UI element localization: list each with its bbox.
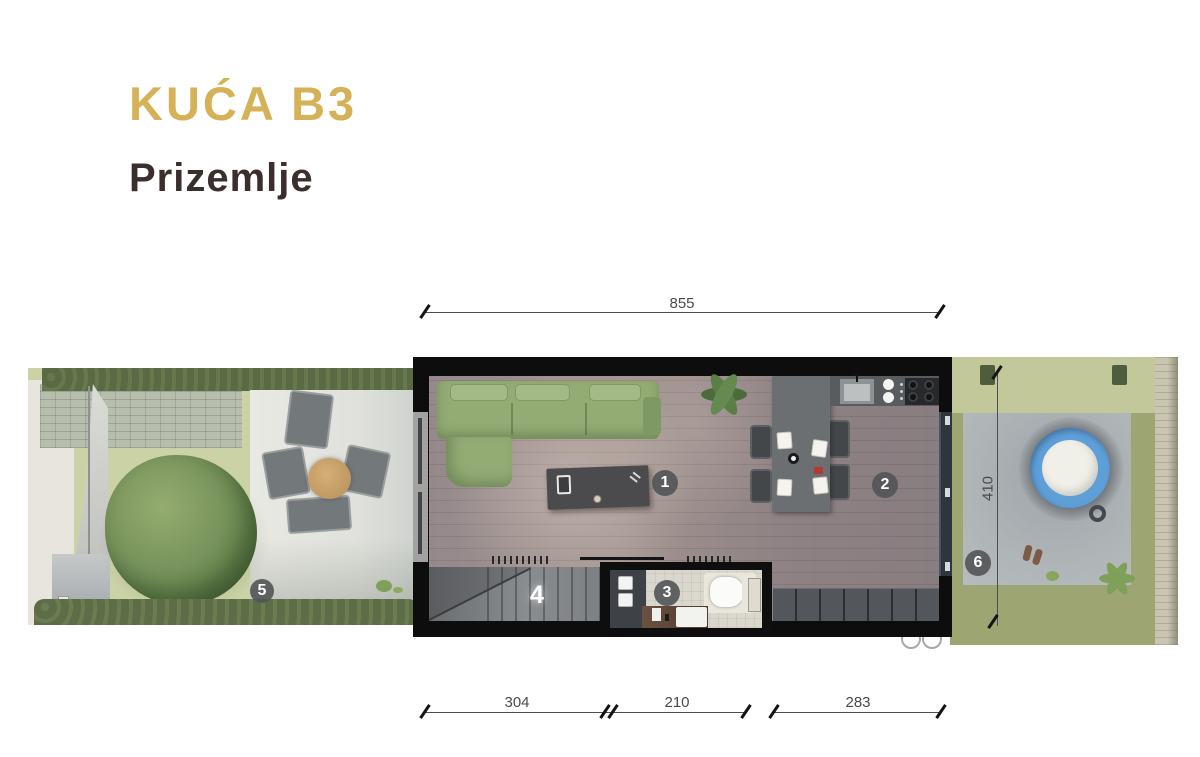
hedge-top [42,368,415,391]
house-outline: 3 1 2 4 [413,357,952,637]
dimension-line-bottom-3 [774,712,941,713]
terrace-shadow [250,538,415,608]
small-plant [1046,571,1059,581]
small-plants [376,580,392,592]
kitchen-sink [840,379,874,404]
outdoor-table [308,458,351,499]
outdoor-chair [286,495,352,534]
dining-table [772,376,830,512]
counter-plate [883,379,894,390]
sofa-chaise [446,437,512,487]
dimension-label-top: 855 [632,295,732,312]
room-marker-3: 3 [654,580,680,606]
wardrobe-closet [773,588,939,621]
front-garden: 5 [28,368,415,625]
cup [593,495,601,503]
kitchen-counter [830,376,939,406]
tablet [557,475,572,494]
vanity-item [652,608,661,621]
dining-chair [750,469,772,503]
washer [618,576,633,590]
door-handle [945,562,950,571]
sink-basin [844,384,870,401]
outdoor-chair [284,390,334,450]
floor-plan-page: KUĆA B3 Prizemlje 855 410 304 210 283 [0,0,1200,757]
sliding-glass-door [939,412,952,576]
room-marker-4: 4 [530,581,544,610]
lounge-chair [1112,365,1127,385]
sofa-seam [511,403,513,435]
sofa-seam [585,403,587,435]
place-setting [777,479,793,497]
sidewalk [1155,357,1178,645]
sofa-cushion [450,384,508,401]
counter-plate [883,392,894,403]
boundary-wall-edge [88,386,90,556]
place-setting [811,439,828,458]
coffee-table [546,465,649,510]
dashed-edge [492,556,549,564]
burner [924,380,934,390]
window-left [413,412,428,562]
burner [908,380,918,390]
cooktop [905,378,939,405]
bathroom-sink [676,607,707,627]
staircase [429,567,607,621]
room-marker-2: 2 [872,472,898,498]
sofa-armrest [643,397,661,435]
outdoor-chair [261,446,311,501]
tree [105,455,257,605]
dryer [618,593,633,607]
dining-chair [750,425,772,459]
dining-chair [828,464,850,500]
sofa [437,381,659,439]
dimension-line-top [425,312,940,313]
stair-railing [580,557,664,560]
hedge-bottom [34,599,415,625]
place-setting [812,476,829,494]
pool [1030,428,1110,508]
pool-ring [1089,505,1106,522]
pool-water [1042,440,1098,496]
paver-area [40,384,242,448]
room-marker-1: 1 [652,470,678,496]
burner [908,392,918,402]
bathroom-floor: 3 [610,570,762,628]
phone [629,472,640,483]
table-bowl [788,453,799,464]
dimension-label-bottom-1: 304 [467,694,567,711]
burner [924,392,934,402]
door-handle [945,488,950,497]
dimension-label-side: 410 [980,459,997,519]
toilet [710,577,744,607]
place-setting [776,431,792,449]
window-glass [418,418,422,484]
door-handle [945,416,950,425]
cooktop-knob [900,390,903,393]
faucet [852,374,861,376]
page-subtitle: Prizemlje [129,156,314,201]
vanity-item [665,614,669,621]
room-marker-6: 6 [965,550,991,576]
cooktop-knob [900,397,903,400]
dimension-line-bottom-1 [425,712,608,713]
page-title: KUĆA B3 [129,76,357,131]
dimension-label-bottom-3: 283 [808,694,908,711]
window-glass [418,492,422,554]
sofa-cushion [589,384,641,401]
room-marker-5: 5 [250,579,274,603]
bathroom-cabinet [748,578,761,612]
table-item [814,467,823,474]
sofa-cushion [515,384,570,401]
dimension-line-bottom-2 [608,712,746,713]
dining-chair [828,420,850,458]
bathroom: 3 [600,562,772,637]
cooktop-knob [900,383,903,386]
dimension-line-side [997,374,998,626]
dimension-label-bottom-2: 210 [627,694,727,711]
indoor-plant [695,369,753,421]
